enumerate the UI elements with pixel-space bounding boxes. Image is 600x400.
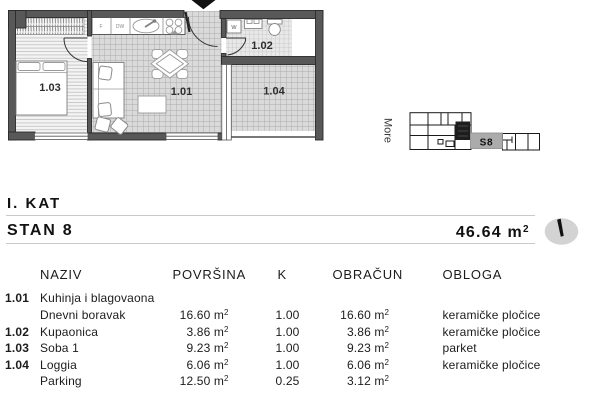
svg-text:1.03: 1.03: [39, 82, 60, 94]
svg-text:1.04: 1.04: [263, 86, 285, 98]
svg-text:1.02: 1.02: [251, 40, 272, 52]
svg-text:S8: S8: [480, 138, 494, 149]
svg-text:F: F: [99, 24, 102, 30]
svg-text:More: More: [382, 118, 394, 143]
svg-text:W: W: [231, 25, 237, 31]
svg-text:DW: DW: [116, 24, 125, 30]
svg-text:1.01: 1.01: [171, 86, 192, 98]
